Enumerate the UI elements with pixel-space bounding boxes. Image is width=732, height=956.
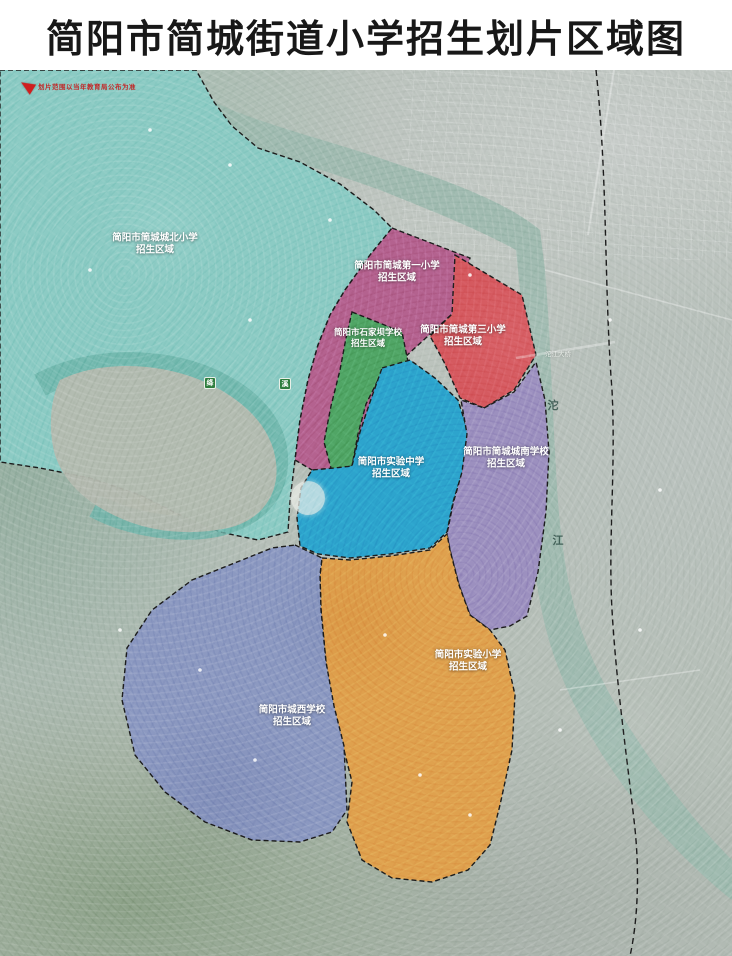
zone-label-shiyan-xiaoxue: 简阳市实验小学 招生区域 — [435, 650, 502, 675]
zone-sub: 招生区域 — [259, 717, 326, 729]
zone-chengnan-polygon — [447, 362, 549, 630]
zone-name: 简阳市城西学校 — [259, 705, 326, 716]
zone-label-diyi: 简阳市简城第一小学 招生区域 — [354, 261, 440, 286]
zone-sub: 招生区域 — [334, 339, 402, 350]
zone-name: 简阳市简城第一小学 — [354, 261, 440, 272]
zone-sub: 招生区域 — [354, 273, 440, 285]
river-label-tuo: 沱 — [548, 397, 559, 413]
road-shield-icon: 溪 — [279, 378, 291, 390]
zone-label-shiyan-zhongxue: 简阳市实验中学 招生区域 — [358, 457, 425, 482]
map-canvas: 简阳市简城城北小学 招生区域 简阳市简城第一小学 招生区域 简阳市简城第三小学 … — [0, 70, 732, 956]
zone-name: 简阳市简城城北小学 — [112, 233, 198, 244]
zone-name: 简阳市石家坝学校 — [334, 328, 402, 338]
title-bar: 简阳市简城街道小学招生划片区域图 — [0, 0, 732, 70]
zone-sub: 招生区域 — [420, 337, 506, 349]
zone-sub: 招生区域 — [112, 245, 198, 257]
zone-label-shijiaba: 简阳市石家坝学校 招生区域 — [334, 328, 402, 350]
zone-sub: 招生区域 — [358, 469, 425, 481]
zone-sub: 招生区域 — [463, 459, 549, 471]
zone-label-chengbei: 简阳市简城城北小学 招生区域 — [112, 233, 198, 258]
zone-sub: 招生区域 — [435, 662, 502, 674]
zone-name: 简阳市简城第三小学 — [420, 325, 506, 336]
bridge-label: 沱江大桥 — [545, 348, 571, 358]
zone-name: 简阳市简城城南学校 — [463, 447, 549, 458]
zone-name: 简阳市实验中学 — [358, 457, 425, 468]
road-shield-icon: 绛 — [204, 377, 216, 389]
enrollment-map-page: 简阳市简城街道小学招生划片区域图 — [0, 0, 732, 956]
map-notice: 划片范围以当年教育局公布为准 — [20, 80, 136, 92]
notice-text: 划片范围以当年教育局公布为准 — [38, 81, 136, 91]
zone-label-chengnan: 简阳市简城城南学校 招生区域 — [463, 447, 549, 472]
zone-chengxi-polygon — [122, 545, 347, 842]
zone-name: 简阳市实验小学 — [435, 650, 502, 661]
district-boundary — [596, 70, 637, 956]
zones-overlay — [0, 70, 732, 956]
zone-label-chengxi: 简阳市城西学校 招生区域 — [259, 705, 326, 730]
stadium-poi — [291, 481, 325, 515]
page-title: 简阳市简城街道小学招生划片区域图 — [46, 8, 686, 63]
zone-label-disan: 简阳市简城第三小学 招生区域 — [420, 325, 506, 350]
river-label-jiang: 江 — [553, 532, 564, 548]
